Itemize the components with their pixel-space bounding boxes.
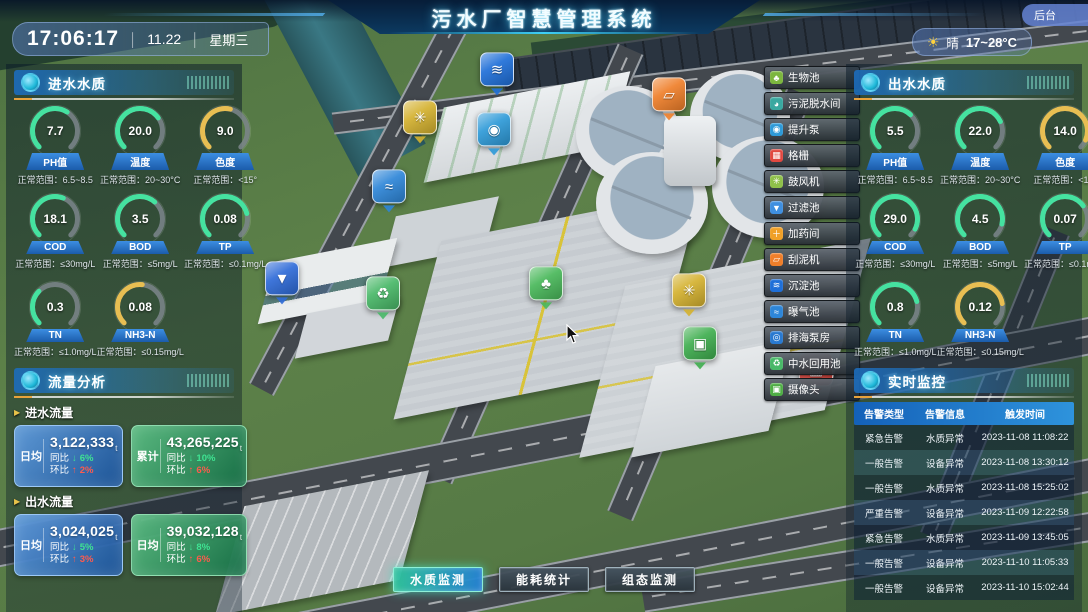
alarm-cell: 一般告警 — [854, 456, 914, 470]
alarm-cell: 2023-11-08 11:08:22 — [976, 432, 1074, 443]
metric-value: 5% — [80, 542, 94, 555]
sludge-dewatering-icon: ◕ — [770, 97, 783, 110]
gauge-label: TN — [866, 329, 924, 342]
marker-lift-pump[interactable]: ◉ — [477, 112, 511, 155]
divider: │ — [191, 32, 199, 47]
gauge-dial: 0.07 — [1038, 192, 1088, 246]
bio-pool-icon: ♣ — [770, 71, 783, 84]
aeration-pool-icon: ≈ — [770, 305, 783, 318]
gauge: 5.5 PH值 正常范围：6.5~8.5 — [854, 104, 936, 192]
gauge: 0.07 TP 正常范围：≤0.1mg/L — [1024, 192, 1088, 280]
marker-pointer — [694, 362, 706, 369]
arrow-down-icon: ↓ — [72, 453, 77, 466]
gauge-dial: 22.0 — [953, 104, 1007, 158]
alarm-cell: 2023-11-09 12:22:58 — [976, 507, 1074, 518]
gauge-dial: 0.08 — [113, 280, 167, 334]
app-header: 污水厂智慧管理系统 — [328, 0, 760, 34]
gauge-dial: 0.08 — [198, 192, 252, 246]
grille-icon: ▦ — [770, 149, 783, 162]
gauge-value: 4.5 — [953, 192, 1007, 246]
gauge-range: 正常范围：<15° — [1033, 173, 1088, 186]
marker-pointer — [491, 88, 503, 95]
alarm-cell: 一般告警 — [854, 581, 914, 595]
metric-label: 同比 — [50, 453, 69, 466]
tab-water-quality-monitor[interactable]: 水质监测 — [393, 567, 483, 592]
marker-pointer — [377, 312, 389, 319]
gauge-value: 5.5 — [868, 104, 922, 158]
legend-label: 加药间 — [788, 226, 820, 241]
camera-icon: ▣ — [770, 383, 783, 396]
gauge-label: PH值 — [26, 153, 84, 170]
flow-card-tag: 累计 — [136, 439, 161, 473]
gauge-dial: 3.5 — [113, 192, 167, 246]
gauge-label: PH值 — [866, 153, 924, 170]
blower-icon: ✳ — [770, 175, 783, 188]
alarm-cell: 水质异常 — [914, 531, 976, 545]
flow-card-metric: 环比 ↑ 6% — [167, 465, 243, 478]
left-panel: 进水水质 7.7 PH值 正常范围：6.5~8.5 20.0 温度 正常范围：2… — [6, 64, 242, 612]
flow-card-metric: 环比 ↑ 6% — [167, 554, 243, 567]
section-title: 流量分析 — [48, 371, 106, 391]
metric-label: 环比 — [167, 554, 186, 567]
section-underline — [854, 396, 1074, 398]
gauge-dial: 0.12 — [953, 280, 1007, 334]
backend-button[interactable]: 后台 — [1022, 4, 1088, 26]
page-title: 污水厂智慧管理系统 — [432, 3, 657, 32]
marker-pointer — [540, 302, 552, 309]
sun-icon: ☀ — [927, 34, 940, 51]
section-orb-icon — [21, 73, 40, 92]
flow-card: 日均 3,024,025t 同比 ↓ 5% 环比 ↑ 3% — [14, 514, 123, 576]
gauge-dial: 0.8 — [868, 280, 922, 334]
alarm-col-header: 告警信息 — [914, 406, 976, 421]
flow-card-metric: 同比 ↓ 5% — [50, 542, 118, 555]
marker-camera[interactable]: ▣ — [683, 326, 717, 369]
gauge-range: 正常范围：6.5~8.5 — [18, 173, 93, 186]
metric-label: 环比 — [50, 465, 69, 478]
outflow-gauges: 5.5 PH值 正常范围：6.5~8.5 22.0 温度 正常范围：20~30°… — [854, 104, 1074, 368]
divider: │ — [129, 32, 137, 47]
gauge-range: 正常范围：≤0.1mg/L — [184, 257, 266, 270]
legend-label: 摄像头 — [788, 382, 820, 397]
gauge: 29.0 COD 正常范围：≤30mg/L — [854, 192, 936, 280]
metric-label: 同比 — [167, 453, 186, 466]
gauge-value: 0.12 — [953, 280, 1007, 334]
marker-pointer — [414, 136, 426, 143]
scraper-icon: ▱ — [770, 253, 783, 266]
alarm-row[interactable]: 一般告警设备异常2023-11-10 15:02:44 — [854, 575, 1074, 600]
section-title: 进水水质 — [48, 73, 106, 93]
gauge-value: 0.07 — [1038, 192, 1088, 246]
flow-unit: t — [240, 443, 243, 453]
metric-label: 同比 — [167, 542, 186, 555]
marker-aeration[interactable]: ≈ — [372, 169, 406, 212]
alarm-col-header: 告警类型 — [854, 406, 914, 421]
arrow-up-icon: ↑ — [189, 554, 194, 567]
tab-scada-monitor[interactable]: 组态监测 — [605, 567, 695, 592]
flow-group: ▶出水流量 日均 3,024,025t 同比 ↓ 5% 环比 ↑ 3% — [14, 493, 234, 576]
arrow-down-icon: ↓ — [72, 542, 77, 555]
marker-scraper-icon: ▱ — [652, 77, 686, 111]
gauge-range: 正常范围：20~30°C — [940, 173, 1020, 186]
tab-energy-stats[interactable]: 能耗统计 — [499, 567, 589, 592]
metric-value: 2% — [80, 465, 94, 478]
alarm-cell: 严重告警 — [854, 506, 914, 520]
legend-label: 生物池 — [788, 70, 820, 85]
gauge-label: 色度 — [1036, 153, 1088, 170]
gauge-value: 0.3 — [28, 280, 82, 334]
alarm-cell: 2023-11-08 13:30:12 — [976, 457, 1074, 468]
clock-bar: 17:06:17 │ 11.22 │ 星期三 — [12, 22, 269, 56]
marker-filter-icon: ▼ — [265, 261, 299, 295]
flow-card: 累计 43,265,225t 同比 ↓ 10% 环比 ↑ 6% — [131, 425, 248, 487]
flow-card-metric: 同比 ↓ 10% — [167, 453, 243, 466]
marker-camera-icon: ▣ — [683, 326, 717, 360]
gauge-range: 正常范围：≤30mg/L — [855, 257, 935, 270]
marker-filter[interactable]: ▼ — [265, 261, 299, 304]
alarm-cell: 设备异常 — [914, 556, 976, 570]
sea-discharge-pump-icon: ◎ — [770, 331, 783, 344]
gauge: 0.12 NH3-N 正常范围：≤0.15mg/L — [936, 280, 1023, 368]
weather-bar: ☀ 晴 17~28°C — [912, 28, 1032, 56]
outflow-quality-header: 出水水质 — [854, 70, 1074, 95]
arrow-down-icon: ↓ — [189, 453, 194, 466]
dosing-room-icon: ＋ — [770, 227, 783, 240]
marker-sedimentation-icon: ≋ — [480, 52, 514, 86]
flow-card: 日均 39,032,128t 同比 ↓ 8% 环比 ↑ 6% — [131, 514, 248, 576]
gauge-range: 正常范围：20~30°C — [100, 173, 180, 186]
reuse-pool-icon: ♻ — [770, 357, 783, 370]
triangle-icon: ▶ — [14, 497, 20, 506]
alarm-cell: 一般告警 — [854, 556, 914, 570]
metric-value: 6% — [196, 554, 210, 567]
marker-blower-2-icon: ✳ — [672, 273, 706, 307]
section-orb-icon — [21, 371, 40, 390]
gauge-label: TP — [1036, 241, 1088, 254]
gauge-label: NH3-N — [111, 329, 169, 342]
flow-card-metric: 环比 ↑ 3% — [50, 554, 118, 567]
header-decor-line — [103, 13, 326, 16]
marker-pointer — [488, 148, 500, 155]
gauge: 7.7 PH值 正常范围：6.5~8.5 — [14, 104, 96, 192]
gauge-dial: 20.0 — [113, 104, 167, 158]
current-time: 17:06:17 — [27, 27, 119, 51]
alarm-cell: 紧急告警 — [854, 431, 914, 445]
section-orb-icon — [861, 73, 880, 92]
gauge-value: 7.7 — [28, 104, 82, 158]
gauge: 0.08 TP 正常范围：≤0.1mg/L — [184, 192, 266, 280]
gauge-range: 正常范围：≤30mg/L — [15, 257, 95, 270]
gauge-value: 29.0 — [868, 192, 922, 246]
marker-blower-2[interactable]: ✳ — [672, 273, 706, 316]
flow-card-tag: 日均 — [19, 439, 44, 473]
flow-subtitle: ▶出水流量 — [14, 493, 234, 510]
alarm-row[interactable]: 一般告警设备异常2023-11-08 13:30:12 — [854, 450, 1074, 475]
flow-card-value: 3,024,025t — [50, 523, 118, 542]
gauge-value: 0.08 — [113, 280, 167, 334]
flow-card-value: 43,265,225t — [167, 434, 243, 453]
alarm-cell: 2023-11-09 13:45:05 — [976, 532, 1074, 543]
arrow-up-icon: ↑ — [72, 554, 77, 567]
marker-pointer — [383, 205, 395, 212]
gauge-range: 正常范围：≤5mg/L — [103, 257, 178, 270]
alarm-cell: 2023-11-08 15:25:02 — [976, 482, 1074, 493]
bottom-tab-bar: 水质监测能耗统计组态监测 — [393, 567, 695, 592]
flow-card-metric: 同比 ↓ 6% — [50, 453, 118, 466]
gauge-range: 正常范围：≤5mg/L — [943, 257, 1018, 270]
flow-unit: t — [115, 443, 118, 453]
gauge-label: 温度 — [111, 153, 169, 170]
alarm-cell: 设备异常 — [914, 581, 976, 595]
marker-pointer — [663, 113, 675, 120]
alarm-row[interactable]: 紧急告警水质异常2023-11-08 11:08:22 — [854, 425, 1074, 450]
gauge-label: BOD — [111, 241, 169, 254]
alarm-cell: 水质异常 — [914, 481, 976, 495]
alarm-row[interactable]: 一般告警水质异常2023-11-08 15:25:02 — [854, 475, 1074, 500]
gauge-label: TN — [26, 329, 84, 342]
section-orb-icon — [861, 371, 880, 390]
alarm-cell: 紧急告警 — [854, 531, 914, 545]
section-underline — [14, 396, 234, 398]
metric-value: 3% — [80, 554, 94, 567]
gauge-range: 正常范围：≤0.15mg/L — [96, 345, 183, 358]
gauge: 0.08 NH3-N 正常范围：≤0.15mg/L — [96, 280, 183, 368]
inflow-gauges: 7.7 PH值 正常范围：6.5~8.5 20.0 温度 正常范围：20~30°… — [14, 104, 234, 368]
gauge-value: 0.08 — [198, 192, 252, 246]
metric-label: 同比 — [50, 542, 69, 555]
alarm-row[interactable]: 一般告警设备异常2023-11-10 11:05:33 — [854, 550, 1074, 575]
metric-value: 10% — [196, 453, 215, 466]
marker-sedimentation[interactable]: ≋ — [480, 52, 514, 95]
realtime-monitor-header: 实时监控 — [854, 368, 1074, 393]
legend-label: 鼓风机 — [788, 174, 820, 189]
arrow-up-icon: ↑ — [189, 465, 194, 478]
gauge-dial: 29.0 — [868, 192, 922, 246]
marker-reuse-icon: ♻ — [366, 276, 400, 310]
flow-card-value: 3,122,333t — [50, 434, 118, 453]
alarm-row[interactable]: 严重告警设备异常2023-11-09 12:22:58 — [854, 500, 1074, 525]
section-title: 实时监控 — [888, 371, 946, 391]
gauge-range: 正常范围：≤1.0mg/L — [854, 345, 936, 358]
weather-condition: 晴 — [946, 33, 959, 52]
marker-pointer — [276, 297, 288, 304]
metric-label: 环比 — [167, 465, 186, 478]
alarm-cell: 设备异常 — [914, 506, 976, 520]
flow-card-tag: 日均 — [136, 528, 161, 562]
gauge-dial: 5.5 — [868, 104, 922, 158]
gauge-range: 正常范围：<15° — [193, 173, 257, 186]
flow-unit: t — [240, 532, 243, 542]
gauge-dial: 14.0 — [1038, 104, 1088, 158]
current-weekday: 星期三 — [209, 30, 248, 49]
legend-label: 曝气池 — [788, 304, 820, 319]
section-underline — [854, 98, 1074, 100]
marker-bio[interactable]: ♣ — [529, 266, 563, 309]
gauge-value: 9.0 — [198, 104, 252, 158]
alarm-table: 紧急告警水质异常2023-11-08 11:08:22一般告警设备异常2023-… — [854, 425, 1074, 600]
sedimentation-pool-icon: ≋ — [770, 279, 783, 292]
alarm-cell: 2023-11-10 11:05:33 — [976, 557, 1074, 568]
gauge-range: 正常范围：≤0.15mg/L — [936, 345, 1023, 358]
gauge: 3.5 BOD 正常范围：≤5mg/L — [96, 192, 183, 280]
lift-pump-icon: ◉ — [770, 123, 783, 136]
gauge-value: 0.8 — [868, 280, 922, 334]
marker-aeration-icon: ≈ — [372, 169, 406, 203]
legend-label: 中水回用池 — [788, 356, 841, 371]
alarm-row[interactable]: 紧急告警水质异常2023-11-09 13:45:05 — [854, 525, 1074, 550]
current-date: 11.22 — [147, 31, 181, 47]
gauge-value: 20.0 — [113, 104, 167, 158]
gauge-label: 温度 — [951, 153, 1009, 170]
gauge: 22.0 温度 正常范围：20~30°C — [936, 104, 1023, 192]
legend-label: 提升泵 — [788, 122, 820, 137]
alarm-cell: 设备异常 — [914, 456, 976, 470]
flow-card: 日均 3,122,333t 同比 ↓ 6% 环比 ↑ 2% — [14, 425, 123, 487]
gauge-dial: 0.3 — [28, 280, 82, 334]
legend-label: 过滤池 — [788, 200, 820, 215]
alarm-cell: 一般告警 — [854, 481, 914, 495]
dashboard: ≋ ✳ ◉ ▱ ≈ ▼ ♻ ♣ ✳ ▣ ▦ — [0, 0, 1088, 612]
marker-bio-icon: ♣ — [529, 266, 563, 300]
gauge-value: 18.1 — [28, 192, 82, 246]
right-panel: 出水水质 5.5 PH值 正常范围：6.5~8.5 22.0 温度 正常范围：2… — [846, 64, 1082, 612]
gauge: 9.0 色度 正常范围：<15° — [184, 104, 266, 192]
gauge-dial: 7.7 — [28, 104, 82, 158]
alarm-cell: 水质异常 — [914, 431, 976, 445]
alarm-cell: 2023-11-10 15:02:44 — [976, 582, 1074, 593]
gauge: 14.0 色度 正常范围：<15° — [1024, 104, 1088, 192]
gauge: 18.1 COD 正常范围：≤30mg/L — [14, 192, 96, 280]
legend-label: 排海泵房 — [788, 330, 830, 345]
flow-group: ▶进水流量 日均 3,122,333t 同比 ↓ 6% 环比 ↑ 2% — [14, 404, 234, 487]
gauge-label: BOD — [951, 241, 1009, 254]
flow-groups: ▶进水流量 日均 3,122,333t 同比 ↓ 6% 环比 ↑ 2% — [14, 404, 234, 576]
alarm-col-header: 触发时间 — [976, 406, 1074, 421]
alarm-table-header: 告警类型告警信息触发时间 — [854, 402, 1074, 425]
flow-card-metric: 环比 ↑ 2% — [50, 465, 118, 478]
arrow-up-icon: ↑ — [72, 465, 77, 478]
marker-blower-1-icon: ✳ — [403, 100, 437, 134]
section-title: 出水水质 — [888, 73, 946, 93]
temperature-range: 17~28°C — [966, 35, 1017, 50]
marker-reuse[interactable]: ♻ — [366, 276, 400, 319]
inflow-quality-header: 进水水质 — [14, 70, 234, 95]
gauge-dial: 9.0 — [198, 104, 252, 158]
marker-pointer — [683, 309, 695, 316]
triangle-icon: ▶ — [14, 408, 20, 417]
flow-analysis-header: 流量分析 — [14, 368, 234, 393]
metric-value: 6% — [80, 453, 94, 466]
header-decor-line — [763, 13, 986, 16]
metric-value: 8% — [196, 542, 210, 555]
flow-subtitle: ▶进水流量 — [14, 404, 234, 421]
flow-unit: t — [115, 532, 118, 542]
legend-label: 格栅 — [788, 148, 809, 163]
gauge-label: COD — [866, 241, 924, 254]
gauge-label: COD — [26, 241, 84, 254]
gauge-dial: 4.5 — [953, 192, 1007, 246]
gauge-label: TP — [196, 241, 254, 254]
section-underline — [14, 98, 234, 100]
legend-label: 污泥脱水间 — [788, 96, 841, 111]
mouse-cursor — [566, 324, 580, 349]
flow-card-metric: 同比 ↓ 8% — [167, 542, 243, 555]
gauge: 0.8 TN 正常范围：≤1.0mg/L — [854, 280, 936, 368]
filter-pool-icon: ▼ — [770, 201, 783, 214]
flow-card-tag: 日均 — [19, 528, 44, 562]
gauge: 0.3 TN 正常范围：≤1.0mg/L — [14, 280, 96, 368]
legend-label: 沉淀池 — [788, 278, 820, 293]
marker-lift-pump-icon: ◉ — [477, 112, 511, 146]
gauge: 4.5 BOD 正常范围：≤5mg/L — [936, 192, 1023, 280]
legend-label: 刮泥机 — [788, 252, 820, 267]
gauge-value: 22.0 — [953, 104, 1007, 158]
gauge-value: 3.5 — [113, 192, 167, 246]
gauge-label: NH3-N — [951, 329, 1009, 342]
marker-blower-1[interactable]: ✳ — [403, 100, 437, 143]
arrow-down-icon: ↓ — [189, 542, 194, 555]
gauge-range: 正常范围：6.5~8.5 — [858, 173, 933, 186]
metric-label: 环比 — [50, 554, 69, 567]
gauge-range: 正常范围：≤1.0mg/L — [14, 345, 96, 358]
central-hub-building — [664, 116, 716, 186]
gauge-label: 色度 — [196, 153, 254, 170]
gauge: 20.0 温度 正常范围：20~30°C — [96, 104, 183, 192]
metric-value: 6% — [196, 465, 210, 478]
flow-card-value: 39,032,128t — [167, 523, 243, 542]
gauge-value: 14.0 — [1038, 104, 1088, 158]
marker-scraper[interactable]: ▱ — [652, 77, 686, 120]
gauge-dial: 18.1 — [28, 192, 82, 246]
gauge-range: 正常范围：≤0.1mg/L — [1024, 257, 1088, 270]
